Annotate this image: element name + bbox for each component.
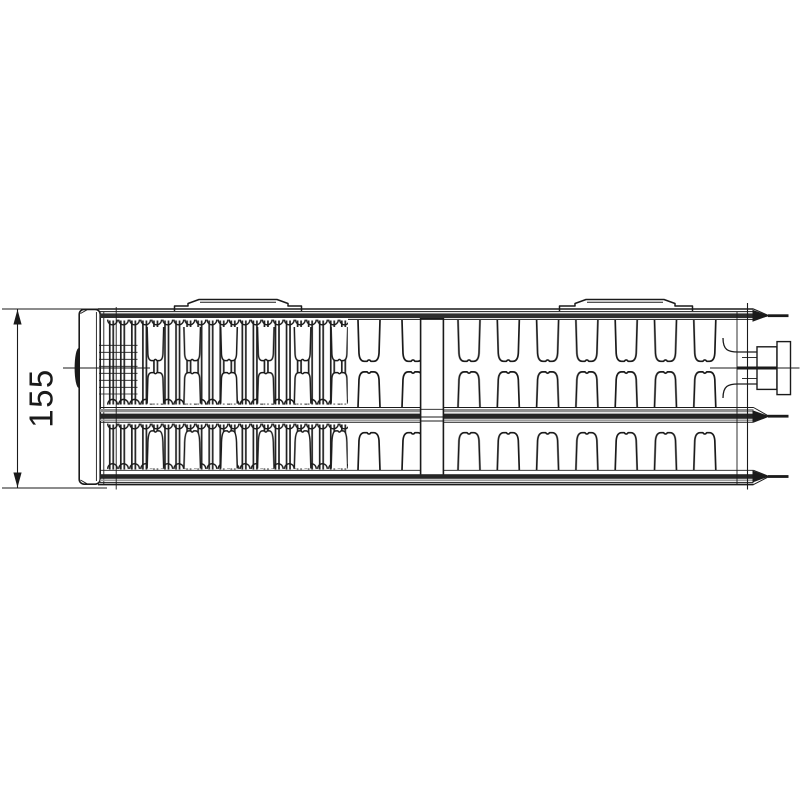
convector-fins-dense <box>107 313 348 475</box>
drawing-canvas: 155 <box>0 0 800 800</box>
panel-bottom-band <box>98 474 754 484</box>
radiator-technical-drawing: 155 <box>0 0 800 800</box>
center-connector <box>421 319 444 478</box>
radiator-body <box>63 300 800 490</box>
dimension-label: 155 <box>23 368 60 428</box>
convector-fins-omega <box>358 317 724 472</box>
left-end-cap <box>75 309 104 484</box>
